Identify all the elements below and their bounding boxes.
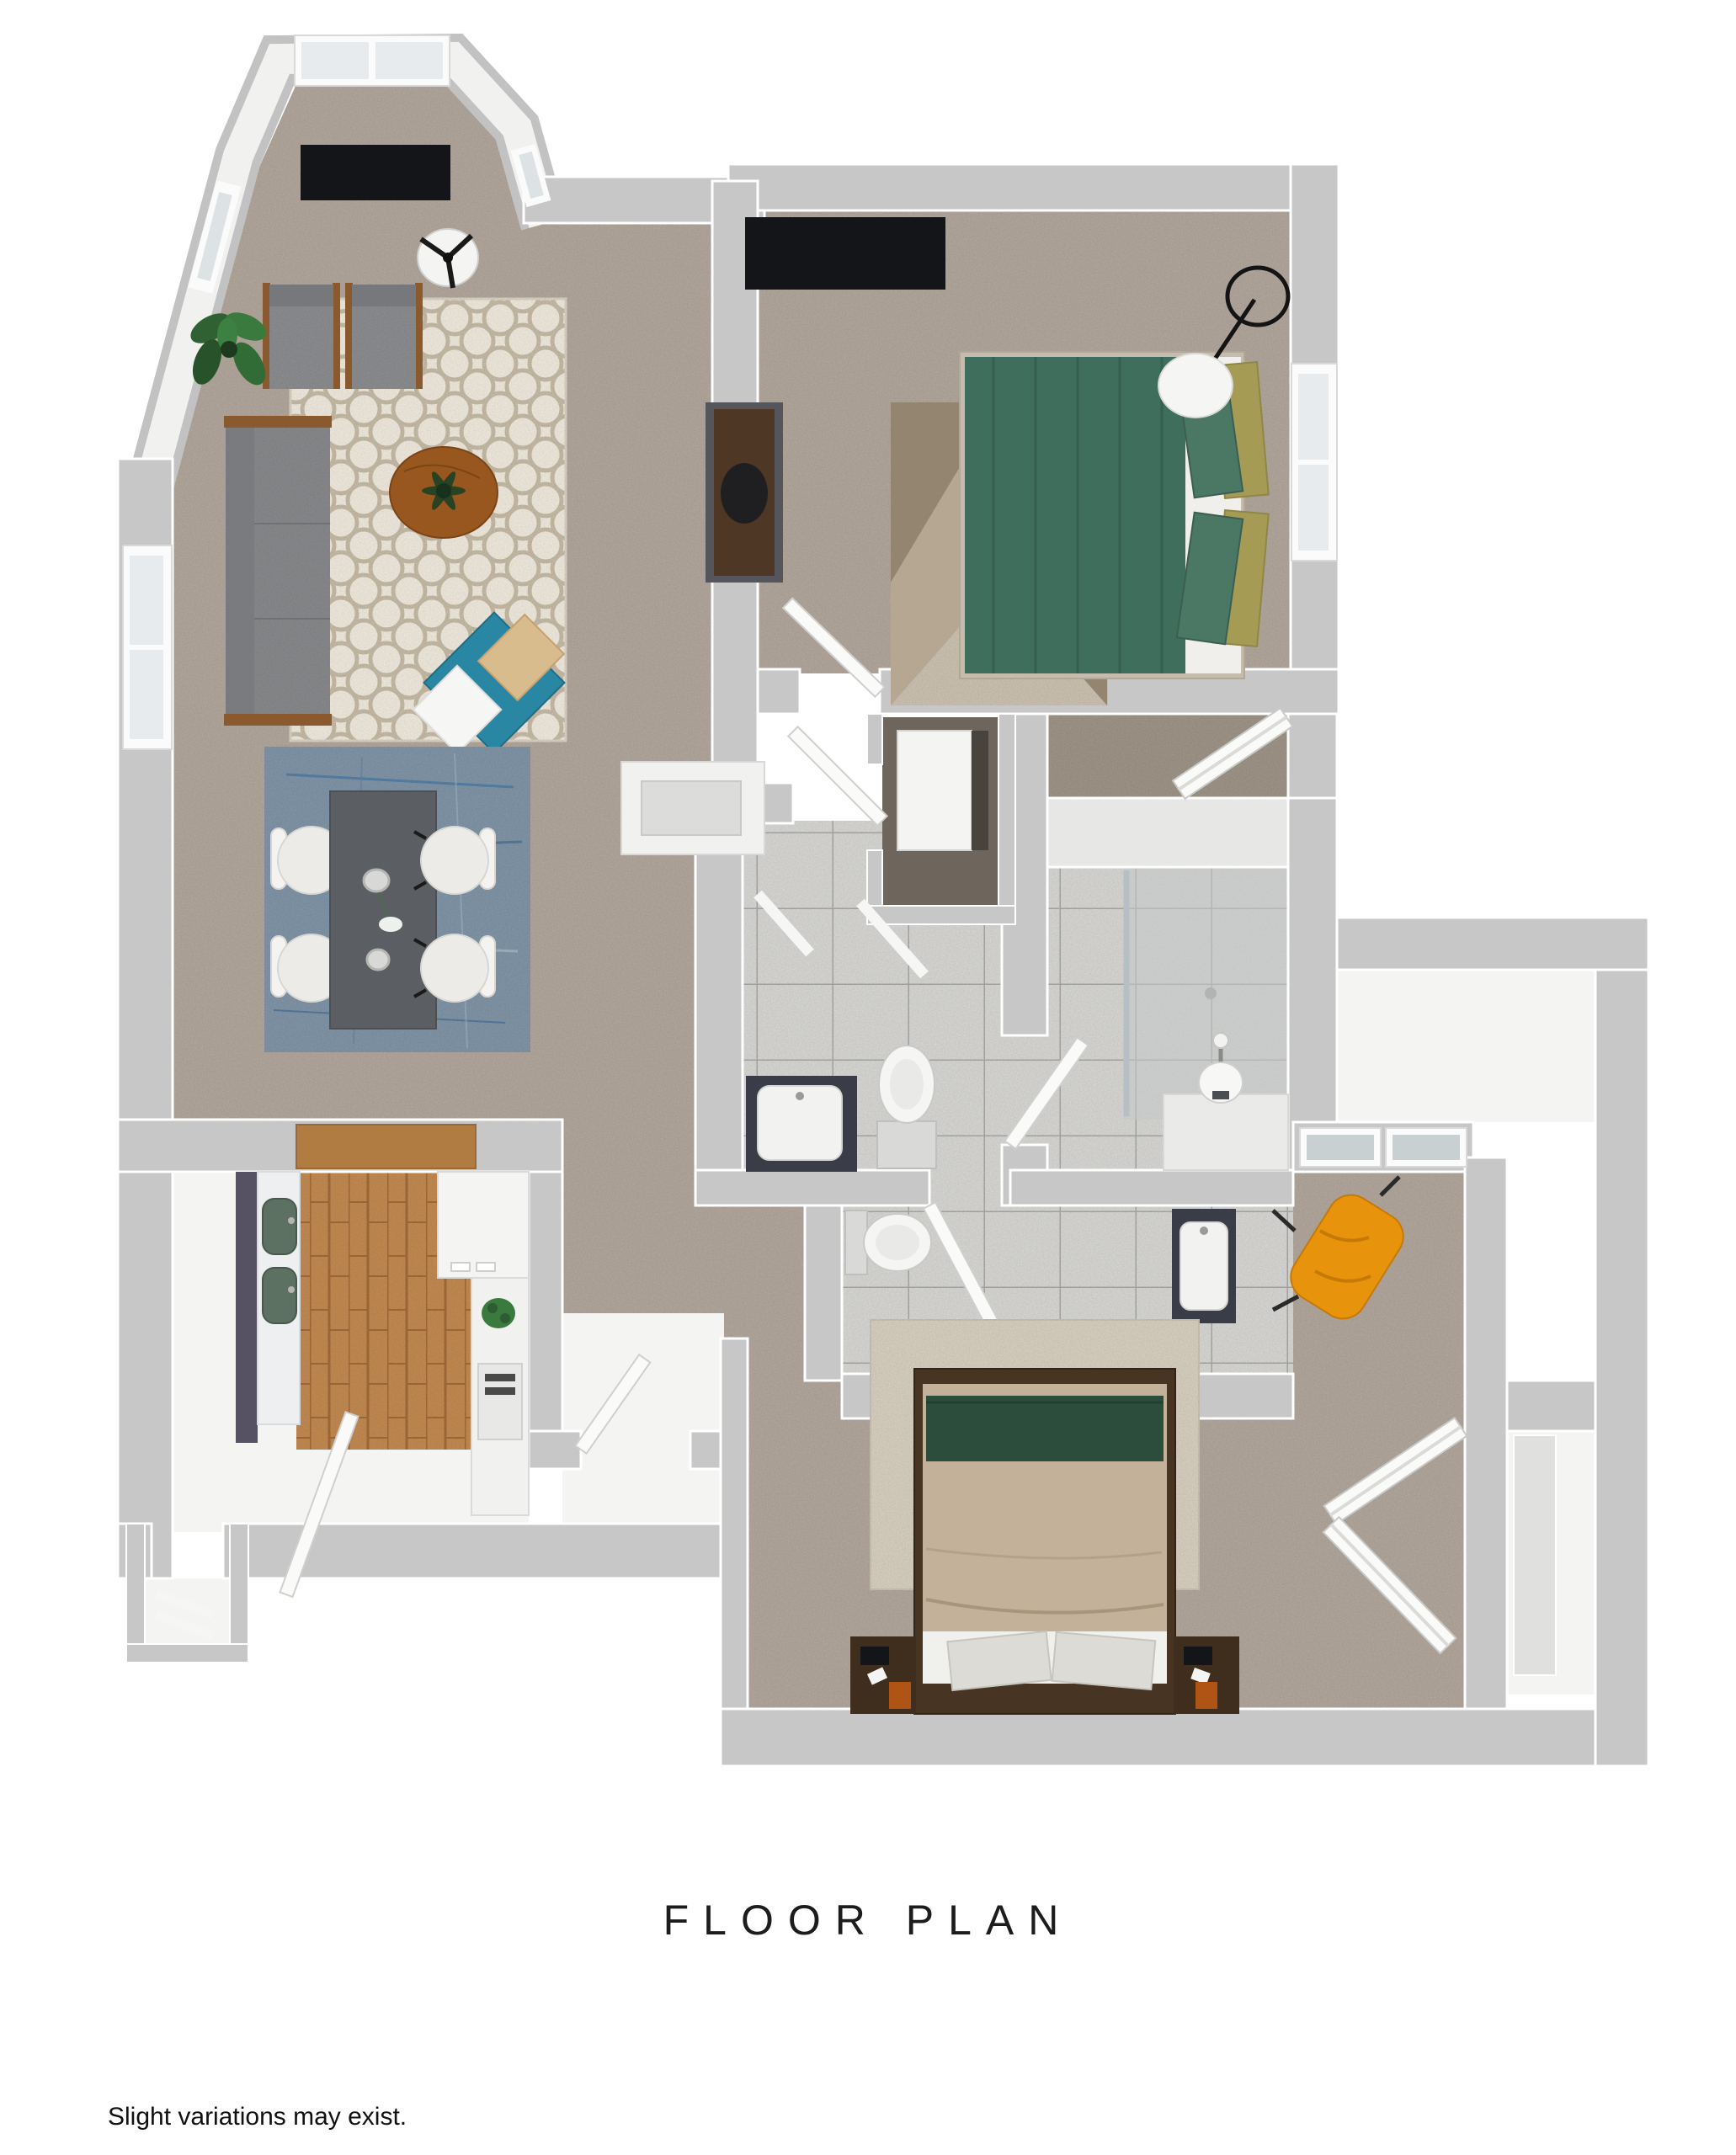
dining-chair-3 (414, 827, 495, 894)
master-bed (914, 1369, 1175, 1714)
water-heater (897, 731, 988, 850)
dining-chair-4 (414, 934, 495, 1002)
page-title: FLOOR PLAN (0, 1896, 1736, 1945)
wall-entry-mb-divider (721, 1338, 748, 1709)
shower-drain (1205, 987, 1217, 999)
bedroom2-east-window (1291, 364, 1337, 561)
wall-bath1-west (695, 823, 743, 1205)
fan-clock (418, 229, 478, 288)
wall-wc-west (805, 1205, 842, 1381)
bay-window-right (523, 147, 539, 204)
wall-small-closet-bottom (126, 1644, 248, 1663)
refrigerator (438, 1172, 529, 1278)
toilet-hall-bath (877, 1046, 936, 1168)
wall-mb-south (721, 1709, 1650, 1766)
coffee-table (390, 447, 498, 538)
oven (478, 1364, 522, 1439)
wall-patio-north (1337, 918, 1648, 970)
kitchen-plant (482, 1298, 515, 1328)
wall-mb-east (1465, 1157, 1507, 1709)
counter-dressing-south (1047, 798, 1293, 867)
kitchen-sink-b (263, 1268, 296, 1323)
nightstand-right (1174, 1636, 1239, 1714)
bay-window-top (295, 35, 450, 86)
disclaimer-text: Slight variations may exist. (108, 2103, 407, 2131)
kitchen-sink-a (263, 1199, 296, 1254)
wall-linen-right (998, 714, 1015, 924)
wall-kitchen-east (529, 1172, 562, 1439)
wall-closet-divider (1514, 1435, 1556, 1675)
wall-bedroom2-north (728, 164, 1295, 210)
wall-bath-south-right (1010, 1170, 1293, 1205)
wall-right-outer (1595, 968, 1648, 1766)
wall-small-closet-left (126, 1524, 145, 1663)
sofa (224, 416, 332, 726)
wall-entry-door-left (529, 1431, 581, 1469)
patio-floor (1337, 970, 1595, 1122)
entry-floor (562, 1313, 724, 1532)
wall-linen-left-a (867, 714, 882, 764)
wall-dressing-east (1288, 714, 1337, 800)
nightstand-left (850, 1636, 916, 1714)
living-west-window (123, 545, 172, 749)
tv-console (301, 145, 450, 200)
kitchen-cabinet-panel (236, 1172, 258, 1443)
wall-bath-south-left (695, 1170, 929, 1205)
dining-furniture (264, 747, 530, 1052)
desk-nook (706, 402, 783, 583)
floor-plan-rendering (0, 0, 1736, 2155)
master-north-window-1 (1300, 1128, 1381, 1167)
armchair-2 (345, 283, 423, 389)
vanity-hall-bath (746, 1076, 857, 1172)
armchair-1 (263, 283, 340, 389)
toilet-water-closet (845, 1211, 931, 1274)
wall-linen-bottom (867, 906, 1015, 924)
master-north-window-2 (1386, 1128, 1467, 1167)
kitchen-passthrough-counter (296, 1125, 476, 1168)
vanity-water-closet (1172, 1209, 1236, 1323)
wall-small-closet-right (230, 1524, 248, 1663)
wall-closet-north (1507, 1381, 1600, 1431)
shower-bench (1164, 1094, 1288, 1170)
hall-builtin-shelf (621, 762, 764, 854)
wall-bath2-east (1288, 798, 1337, 1170)
bedroom2-dresser (745, 217, 945, 290)
